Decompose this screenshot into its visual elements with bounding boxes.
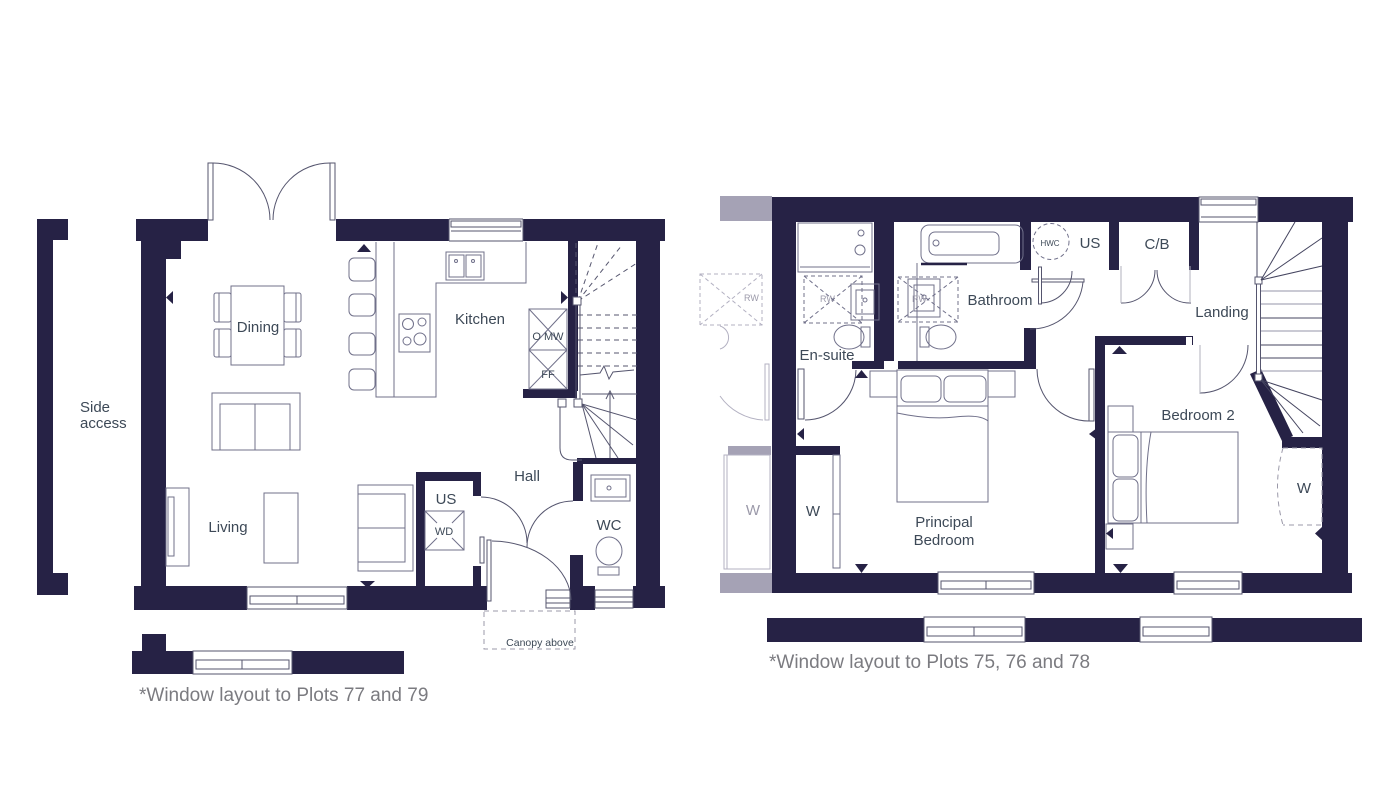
- svg-text:O MW: O MW: [532, 331, 564, 343]
- svg-text:WD: WD: [435, 526, 453, 538]
- svg-text:*Window layout to Plots 77 and: *Window layout to Plots 77 and 79: [139, 685, 428, 706]
- svg-text:access: access: [80, 415, 127, 432]
- svg-text:Side: Side: [80, 399, 110, 416]
- svg-text:Kitchen: Kitchen: [455, 311, 505, 328]
- svg-text:Living: Living: [208, 519, 247, 536]
- svg-text:WC: WC: [597, 517, 622, 534]
- svg-text:Bedroom 2: Bedroom 2: [1161, 407, 1234, 424]
- svg-text:*Window layout to Plots 75, 76: *Window layout to Plots 75, 76 and 78: [769, 652, 1090, 673]
- svg-text:Bedroom: Bedroom: [914, 532, 975, 549]
- svg-text:Bathroom: Bathroom: [967, 292, 1032, 309]
- svg-text:W: W: [806, 503, 821, 520]
- svg-text:Principal: Principal: [915, 514, 973, 531]
- svg-text:Landing: Landing: [1195, 304, 1248, 321]
- svg-text:Canopy above: Canopy above: [506, 637, 574, 649]
- svg-text:FF: FF: [541, 369, 555, 381]
- svg-text:Hall: Hall: [514, 468, 540, 485]
- svg-text:HWC: HWC: [1040, 239, 1059, 248]
- svg-text:US: US: [1080, 235, 1101, 252]
- svg-text:RW: RW: [912, 294, 927, 304]
- svg-text:Dining: Dining: [237, 319, 280, 336]
- svg-text:En-suite: En-suite: [799, 347, 854, 364]
- svg-text:RW: RW: [744, 293, 759, 303]
- svg-text:W: W: [1297, 480, 1312, 497]
- svg-text:US: US: [436, 491, 457, 508]
- svg-text:W: W: [746, 502, 761, 519]
- svg-text:C/B: C/B: [1144, 236, 1169, 253]
